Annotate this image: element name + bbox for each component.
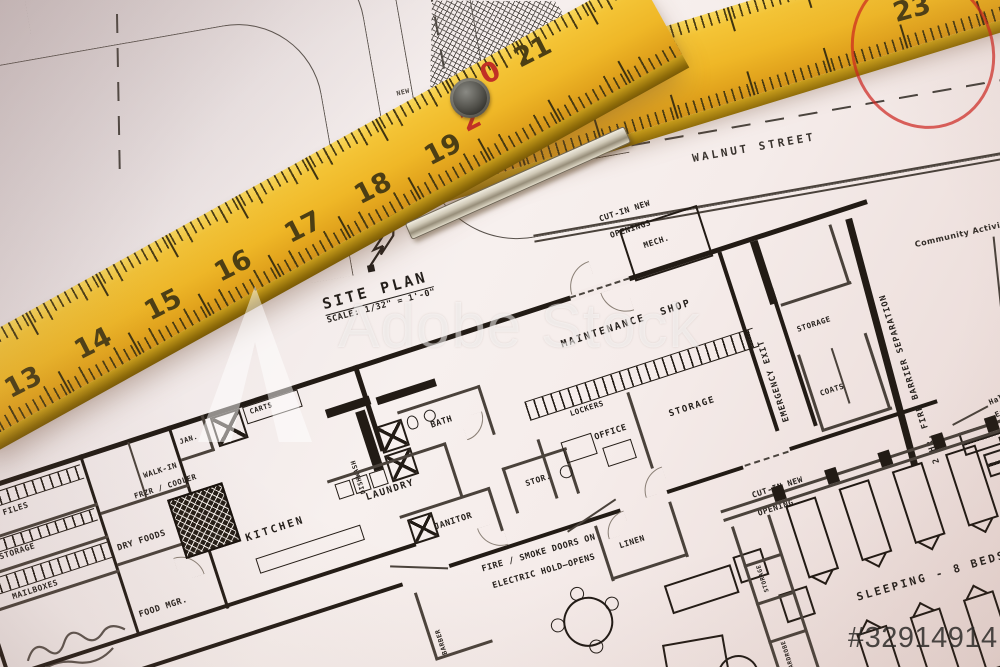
blueprint-photo: WALNUT STREET NEW SITE PLAN SCALE: 1/32"… [0, 0, 1000, 667]
wall [502, 447, 568, 471]
wall [443, 442, 463, 498]
wall [750, 239, 778, 304]
stock-number: #32914914 [848, 624, 998, 653]
site-plan-title-block: SITE PLAN SCALE: 1/32" = 1'-0" [321, 267, 438, 326]
wall-post [877, 449, 893, 467]
leader-line [952, 405, 988, 425]
kitchen-label: KITCHEN [244, 513, 306, 544]
door-swing-arc [460, 411, 489, 440]
office-desk [602, 438, 637, 466]
wall [502, 467, 520, 514]
storage-upper-label: STORAGE [796, 315, 832, 334]
wall-post [824, 466, 840, 484]
table [662, 634, 730, 667]
hall-label: Hall [988, 391, 1000, 407]
washer [334, 479, 354, 499]
cut-in-dashed-wall [744, 450, 788, 466]
wall [399, 486, 489, 518]
toilet-fixture [405, 413, 420, 430]
office-desk [561, 432, 598, 463]
leader-line [390, 565, 448, 569]
door-swing-arc [638, 466, 670, 498]
storage-main-label: STORAGE [668, 394, 717, 419]
pencil-scribble [14, 593, 156, 667]
bed [838, 479, 892, 561]
wall [611, 552, 688, 580]
bed [892, 461, 946, 543]
wall [537, 439, 559, 499]
janitor-label: JANITOR [433, 511, 473, 532]
coats-label: COATS [819, 382, 846, 398]
coats-rod [831, 347, 851, 403]
wall [668, 501, 689, 557]
jan-label: JAN. [179, 432, 199, 445]
partition-line [993, 236, 1000, 413]
community-room-label: Community Activity Roo [914, 213, 1000, 249]
sofa [664, 564, 740, 614]
food-mgr-label: FOOD MGR. [138, 595, 189, 620]
bed [785, 496, 839, 578]
linen-label: LINEN [618, 533, 646, 550]
wall [780, 281, 851, 307]
wall [828, 224, 850, 284]
ruler-hinge-rivet [450, 78, 490, 118]
